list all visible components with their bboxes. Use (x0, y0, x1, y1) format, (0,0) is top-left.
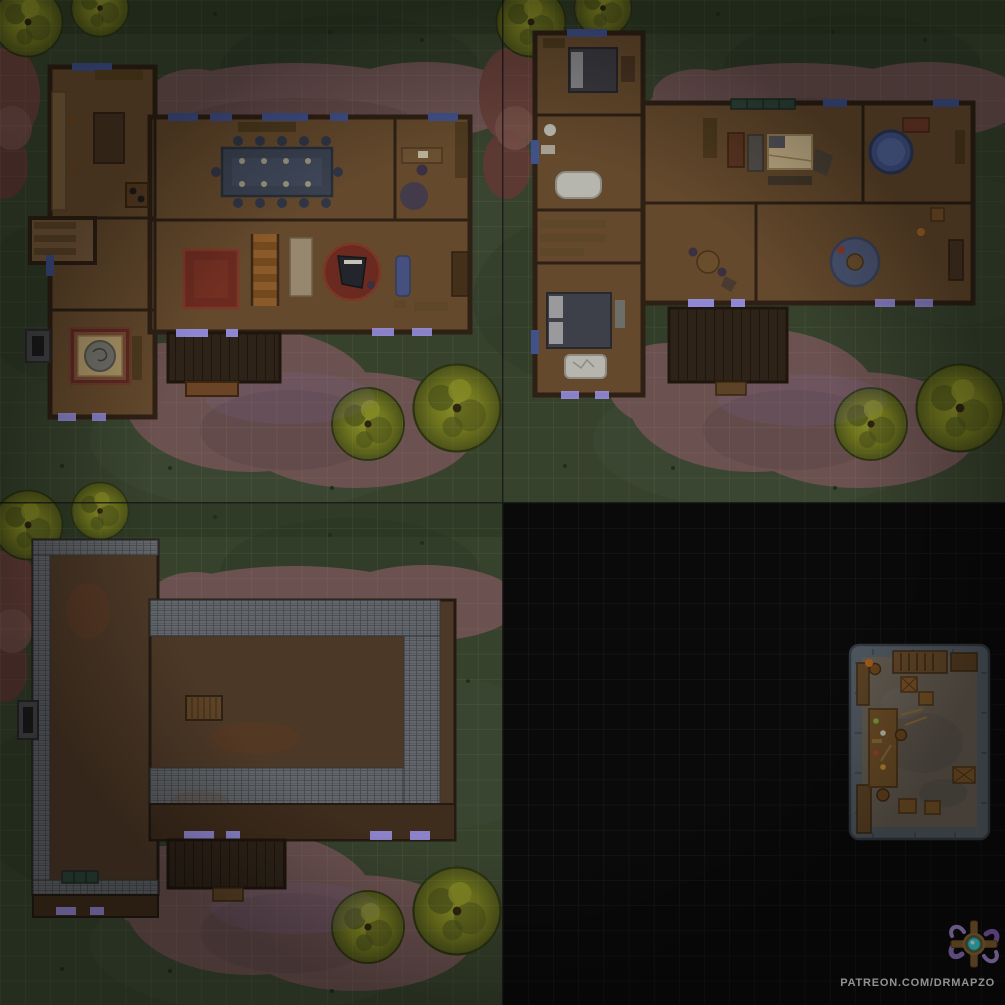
vignette-overlay (0, 0, 1005, 1005)
battle-map-sheet: PATREON.COM/DRMAPZO (0, 0, 1005, 1005)
battle-map-image: PATREON.COM/DRMAPZO (0, 0, 1005, 1005)
